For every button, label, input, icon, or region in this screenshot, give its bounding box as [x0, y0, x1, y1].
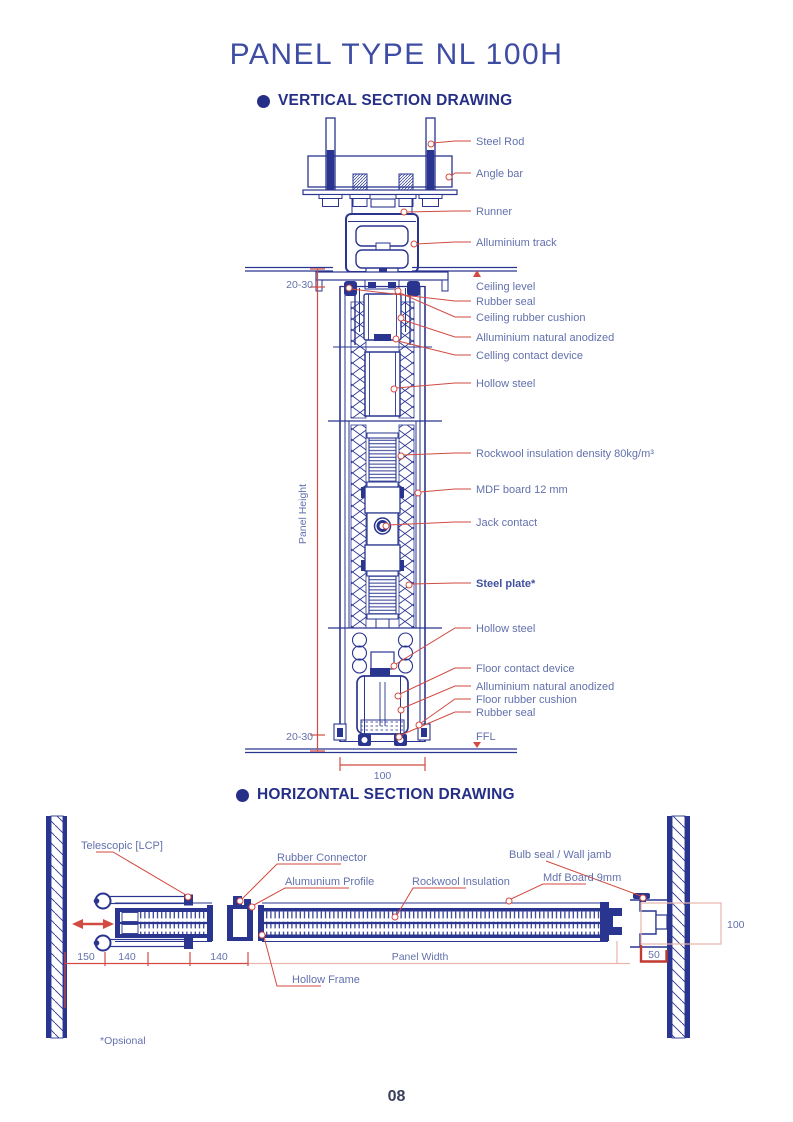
spring-mechanism-bottom — [367, 571, 398, 628]
dim-gap-top: 20-30 — [286, 279, 313, 291]
label-rubber-seal-top: Rubber seal — [476, 296, 535, 308]
hollow-steel-bottom-zone — [353, 633, 413, 673]
label-steel-rod: Steel Rod — [476, 136, 524, 148]
spring-mechanism-top — [367, 433, 398, 487]
rubber-seal-top-right — [407, 281, 420, 296]
hollow-steel-upper — [365, 352, 400, 416]
dim-panel-width: Panel Width — [392, 951, 449, 963]
label-hollow-steel-top: Hollow steel — [476, 378, 535, 390]
label-rockwool: Rockwool insulation density 80kg/m³ — [476, 448, 654, 460]
panel-end-cap — [600, 902, 622, 941]
page-number: 08 — [0, 1088, 793, 1106]
label-bulb-seal-wall-jamb: Bulb seal / Wall jamb — [509, 849, 611, 861]
slide-arrow-icon — [72, 919, 114, 929]
dim-panel-thickness-h: 100 — [727, 919, 745, 931]
dim-panel-height: Panel Height — [297, 484, 309, 544]
label-floor-rubber-cushion: Floor rubber cushion — [476, 694, 577, 706]
catalog-page: PANEL TYPE NL 100H VERTICAL SECTION DRAW… — [0, 0, 793, 1122]
dim-gap-bottom: 20-30 — [286, 731, 313, 743]
label-alumunium-profile: Alumunium Profile — [285, 876, 374, 888]
label-runner: Runner — [476, 206, 512, 218]
jack-contact-device — [367, 513, 398, 545]
dim-telescopic-width: 140 — [118, 951, 136, 963]
label-ceiling-level: Ceiling level — [476, 281, 535, 293]
label-telescopic: Telescopic [LCP] — [81, 840, 163, 852]
label-angle-bar: Angle bar — [476, 168, 523, 180]
left-panel — [115, 903, 213, 942]
mdf-block-lower — [361, 545, 404, 571]
floor-line — [245, 742, 517, 753]
left-wall — [46, 816, 67, 1038]
wall-jamb — [630, 893, 667, 947]
main-panel — [262, 902, 622, 942]
label-rubber-seal-bottom: Rubber seal — [476, 707, 535, 719]
label-hollow-steel-bottom: Hollow steel — [476, 623, 535, 635]
hollow-frame-cell — [122, 913, 138, 922]
label-rockwool-insulation: Rockwool Insulation — [412, 876, 510, 888]
label-alluminium-natural-anodized-bottom: Alluminium natural anodized — [476, 681, 614, 693]
dim-panel-thickness: 100 — [374, 770, 392, 782]
mdf-block-upper — [361, 487, 404, 513]
label-mdf-board: MDF board 12 mm — [476, 484, 568, 496]
label-mdf-board-9mm: Mdf Board 9mm — [543, 872, 621, 884]
right-wall — [667, 816, 690, 1038]
dim-connector-width: 140 — [210, 951, 228, 963]
hollow-frame-cell — [122, 925, 138, 934]
dim-jamb-depth: 50 — [648, 949, 660, 961]
vertical-section-drawing: 20-30 20-30 Panel Height 100 — [245, 118, 654, 782]
dim-left-offset: 150 — [77, 951, 95, 963]
technical-drawing-canvas: 20-30 20-30 Panel Height 100 — [0, 0, 793, 1122]
horizontal-section-drawing: 150 140 140 Panel Width 50 100 — [46, 816, 745, 1038]
floor-contact-device — [334, 668, 430, 746]
label-rubber-connector: Rubber Connector — [277, 852, 367, 864]
label-ceiling-rubber-cushion: Ceiling rubber cushion — [476, 312, 585, 324]
label-alluminium-track: Alluminium track — [476, 237, 557, 249]
label-ffl: FFL — [476, 731, 496, 743]
label-floor-contact-device: Floor contact device — [476, 663, 574, 675]
label-hollow-frame: Hollow Frame — [292, 974, 360, 986]
label-steel-plate: Steel plate* — [476, 578, 536, 590]
label-jack-contact: Jack contact — [476, 517, 537, 529]
footnote: *Opsional — [100, 1035, 146, 1047]
label-celling-contact-device: Celling contact device — [476, 350, 583, 362]
label-alluminium-natural-anodized-top: Alluminium natural anodized — [476, 332, 614, 344]
